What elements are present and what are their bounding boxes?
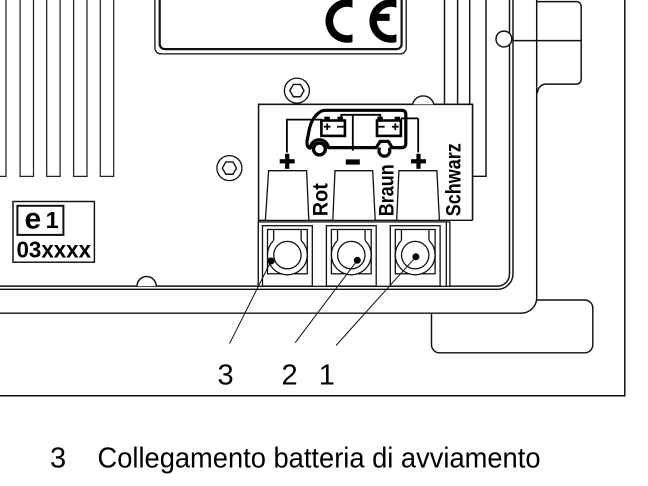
svg-text:Braun: Braun (375, 164, 398, 216)
svg-text:e: e (25, 203, 42, 236)
svg-text:Schwarz: Schwarz (442, 143, 465, 216)
svg-text:2: 2 (282, 360, 298, 392)
svg-text:Rot: Rot (309, 183, 332, 216)
svg-text:1: 1 (46, 207, 59, 233)
svg-text:03xxxx: 03xxxx (17, 237, 92, 263)
svg-text:3: 3 (50, 443, 66, 475)
svg-text:1: 1 (319, 360, 335, 392)
svg-text:Collegamento batteria di avvia: Collegamento batteria di avviamento (98, 443, 541, 475)
svg-text:3: 3 (218, 360, 234, 392)
